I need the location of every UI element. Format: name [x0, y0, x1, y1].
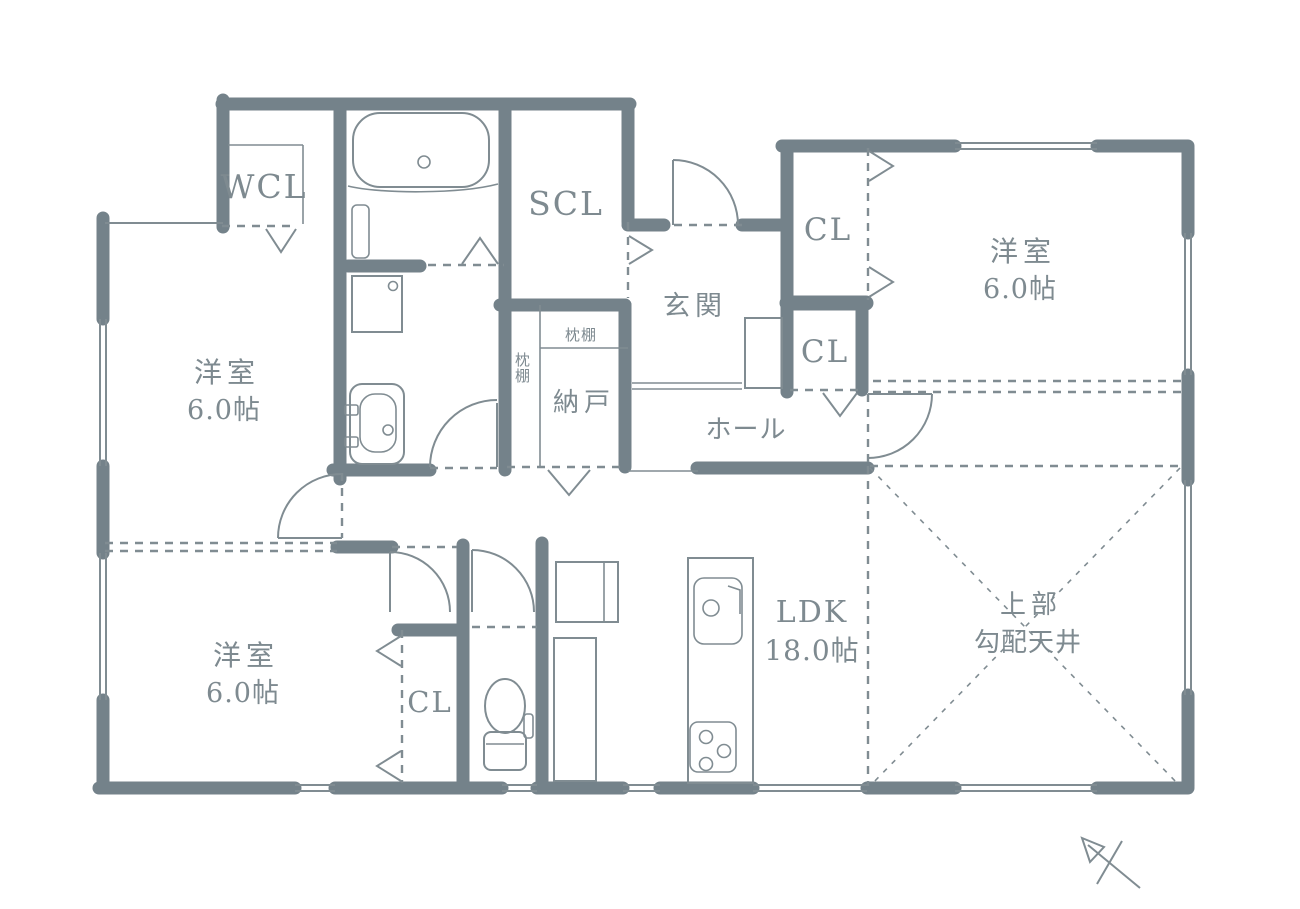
north-arrow-icon — [1082, 838, 1140, 888]
door-swing-icon — [673, 160, 738, 225]
folding-door-triangle-icon — [629, 236, 652, 264]
room-label-bedroom-left-area: 6.0帖 — [187, 395, 261, 426]
folding-door-triangle-icon — [462, 238, 498, 264]
bath-cabinet-icon — [352, 205, 369, 258]
room-label-wcl: WCL — [220, 167, 307, 206]
room-label-closet-upper-right: CL — [804, 212, 852, 248]
room-label-closet-lower-right: CL — [801, 334, 849, 370]
folding-door-triangle-icon — [377, 636, 401, 666]
label-sloped-ceiling-line1: 上部 — [1000, 590, 1062, 620]
label-sloped-ceiling-line2: 勾配天井 — [974, 628, 1082, 658]
refrigerator-icon — [556, 562, 618, 622]
washing-machine-icon — [352, 276, 402, 332]
door-swing-icon — [390, 552, 450, 612]
folding-door-triangle-icon — [548, 470, 590, 495]
room-label-bedroom-top-right-area: 6.0帖 — [983, 274, 1057, 305]
gas-stove-icon — [690, 722, 736, 772]
floor-plan-svg: WCL SCL 玄関 ホール 納戸 枕棚 枕棚 CL CL CL 洋室 6.0帖… — [0, 0, 1300, 909]
label-pillow-shelf-side: 枕棚 — [513, 352, 531, 384]
folding-door-triangle-icon — [266, 229, 296, 252]
room-label-storage: 納戸 — [553, 388, 615, 418]
kitchen-island-icon — [688, 558, 753, 783]
folding-door-triangle-icon — [869, 267, 893, 297]
door-swing-icon — [868, 394, 932, 458]
cupboard-icon — [554, 638, 596, 781]
room-label-bedroom-bottom-left-name: 洋室 — [213, 639, 279, 672]
bathtub-icon — [353, 113, 489, 187]
toilet-icon — [484, 679, 533, 770]
folding-door-triangle-icon — [377, 751, 401, 781]
folding-door-triangle-icon — [869, 151, 893, 181]
label-pillow-shelf-top: 枕棚 — [565, 326, 597, 344]
kitchen-sink-icon — [694, 578, 742, 644]
room-label-ldk-area: 18.0帖 — [764, 634, 859, 667]
room-label-scl: SCL — [528, 184, 604, 223]
folding-door-triangle-icon — [823, 393, 857, 416]
room-label-hall: ホール — [705, 415, 786, 445]
sloped-ceiling-diagonals — [870, 468, 1180, 786]
washbasin-icon — [345, 384, 404, 464]
room-label-bedroom-bottom-left-area: 6.0帖 — [206, 678, 280, 709]
room-label-closet-bottom-left: CL — [407, 685, 452, 719]
floor-plan: WCL SCL 玄関 ホール 納戸 枕棚 枕棚 CL CL CL 洋室 6.0帖… — [0, 0, 1300, 909]
room-label-bedroom-left-name: 洋室 — [194, 356, 260, 389]
door-swing-icon — [278, 474, 342, 538]
sloped-ceiling-diagonal — [870, 468, 1180, 786]
sloped-ceiling-diagonal — [870, 468, 1180, 786]
room-label-entrance: 玄関 — [663, 291, 727, 322]
door-swing-icon — [472, 550, 534, 612]
door-swing-icon — [430, 400, 497, 467]
room-label-ldk-name: LDK — [776, 595, 848, 630]
shoe-cabinet-icon — [745, 318, 782, 388]
room-labels: WCL SCL 玄関 ホール 納戸 枕棚 枕棚 CL CL CL 洋室 6.0帖… — [187, 167, 1082, 719]
room-label-bedroom-top-right-name: 洋室 — [990, 235, 1056, 268]
